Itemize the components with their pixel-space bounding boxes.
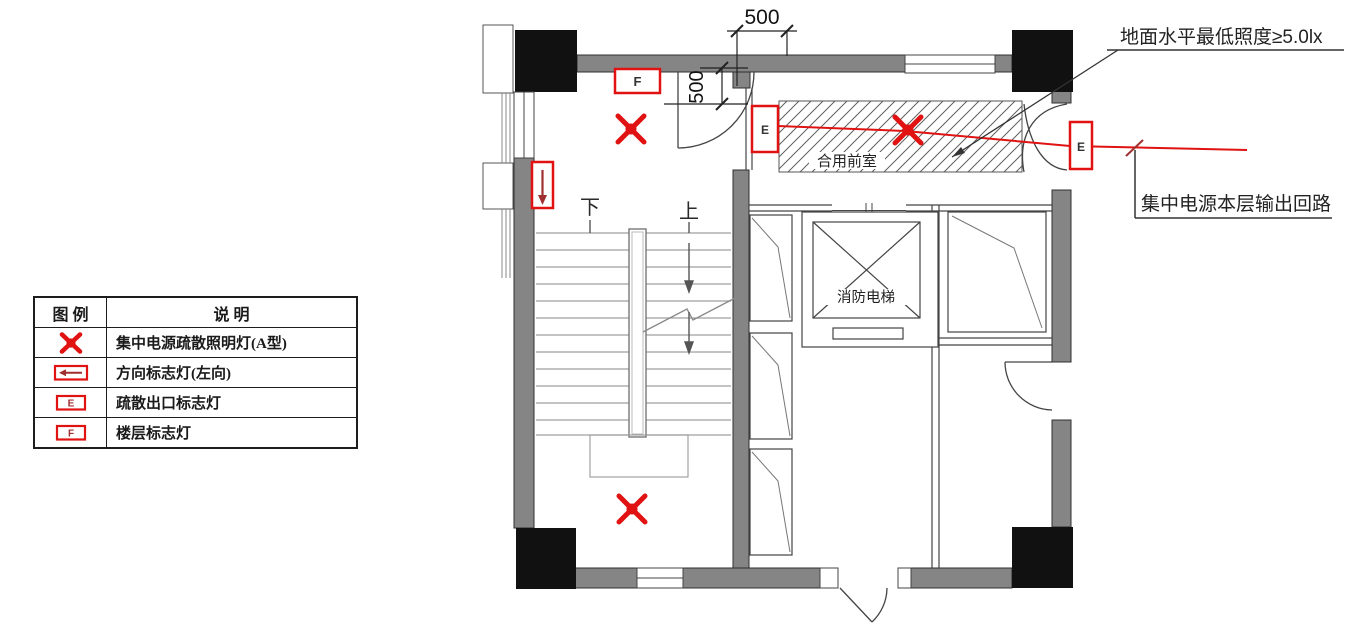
evac-light-stair-top — [618, 116, 644, 142]
svg-text:500: 500 — [744, 6, 779, 29]
front-room-exterior-door — [1023, 104, 1067, 172]
evac-light-x-icon — [35, 328, 107, 357]
floor-sign-lamp: F — [615, 69, 660, 93]
stair-down-label: 下 — [580, 197, 600, 219]
fire-elevator-label: 消防电梯 — [837, 289, 895, 306]
floor-plan-drawing: 下 上 — [440, 0, 1346, 624]
dimension-top-500: 500 — [727, 6, 797, 86]
legend-row-direction-sign: 方向标志灯(左向) — [35, 357, 356, 387]
legend-desc-evac-light: 集中电源疏散照明灯(A型) — [107, 328, 356, 357]
bottom-exit-door — [840, 588, 887, 622]
column-bottom-left — [516, 528, 576, 589]
svg-text:500: 500 — [686, 70, 708, 103]
svg-text:集中电源本层输出回路: 集中电源本层输出回路 — [1141, 193, 1331, 215]
svg-text:E: E — [1077, 140, 1085, 154]
legend-desc-exit-sign: 疏散出口标志灯 — [107, 388, 356, 417]
legend-header-row: 图 例 说 明 — [35, 298, 356, 327]
legend-desc-direction-sign: 方向标志灯(左向) — [107, 358, 356, 387]
legend-floor-letter: F — [67, 428, 73, 439]
legend-exit-letter: E — [67, 398, 74, 409]
left-facade-windows — [483, 25, 513, 278]
stair-break-line — [643, 297, 737, 332]
svg-text:F: F — [634, 74, 642, 89]
direction-sign-left-icon — [35, 358, 107, 387]
right-room-door — [1005, 362, 1052, 410]
shared-front-room-label: 合用前室 — [817, 153, 877, 170]
right-shaft-room — [948, 212, 1046, 332]
stair-direction-arrows — [685, 243, 693, 353]
column-bottom-right — [1012, 527, 1073, 588]
exit-sign-lamp-left: E — [752, 106, 778, 152]
stair-up-label: 上 — [679, 200, 699, 223]
legend-header-description: 说 明 — [107, 298, 356, 327]
circuit-output-note: 集中电源本层输出回路 — [1135, 150, 1332, 218]
stair-landing — [590, 435, 688, 477]
column-top-right — [1012, 30, 1073, 92]
legend-table: 图 例 说 明 集中电源疏散照明灯(A型) 方向标志灯(左向) — [33, 296, 358, 449]
direction-sign-lamp — [532, 162, 553, 208]
svg-text:地面水平最低照度≥5.0lx: 地面水平最低照度≥5.0lx — [1120, 26, 1323, 48]
exit-sign-lamp-right: E — [1070, 122, 1092, 169]
fire-evacuation-lighting-plan: { "colors": { "symbol_red": "#e01212", "… — [0, 0, 1346, 624]
svg-text:E: E — [761, 123, 769, 137]
floor-sign-f-icon: F — [35, 418, 107, 447]
legend-header-symbol: 图 例 — [35, 298, 107, 327]
fire-elevator: 消防电梯 — [802, 212, 938, 347]
legend-row-floor-sign: F 楼层标志灯 — [35, 417, 356, 447]
legend-desc-floor-sign: 楼层标志灯 — [107, 418, 356, 447]
legend-row-exit-sign: E 疏散出口标志灯 — [35, 387, 356, 417]
exit-sign-e-icon: E — [35, 388, 107, 417]
column-top-left — [515, 30, 577, 92]
evac-light-stair-bottom — [619, 496, 645, 522]
legend-row-evac-light: 集中电源疏散照明灯(A型) — [35, 327, 356, 357]
stairwell: 下 上 — [536, 197, 737, 477]
